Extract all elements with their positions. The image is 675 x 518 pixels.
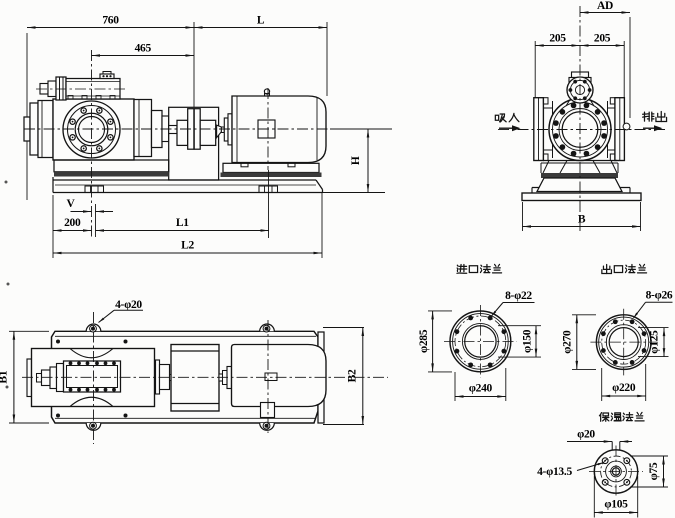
svg-text:4-φ13.5: 4-φ13.5 xyxy=(537,466,572,478)
svg-text:8-φ22: 8-φ22 xyxy=(505,290,532,302)
svg-text:L1: L1 xyxy=(176,217,189,229)
svg-text:φ75: φ75 xyxy=(648,462,660,480)
svg-text:φ150: φ150 xyxy=(522,329,534,353)
svg-text:φ240: φ240 xyxy=(469,383,493,395)
svg-text:200: 200 xyxy=(64,217,81,229)
svg-text:4-φ20: 4-φ20 xyxy=(115,299,142,311)
svg-text:φ20: φ20 xyxy=(577,429,595,441)
svg-text:AD: AD xyxy=(597,0,613,12)
svg-text:H: H xyxy=(350,156,362,165)
svg-text:B: B xyxy=(578,214,586,226)
svg-text:V: V xyxy=(66,198,75,210)
svg-text:φ285: φ285 xyxy=(418,329,430,353)
svg-text:φ125: φ125 xyxy=(649,330,661,354)
svg-text:465: 465 xyxy=(135,43,152,55)
svg-text:φ220: φ220 xyxy=(612,382,636,394)
svg-text:φ105: φ105 xyxy=(604,499,628,511)
svg-text:205: 205 xyxy=(549,33,566,45)
svg-text:8-φ26: 8-φ26 xyxy=(646,290,673,302)
svg-text:L: L xyxy=(257,15,265,27)
svg-text:L2: L2 xyxy=(181,240,194,252)
svg-text:760: 760 xyxy=(102,15,119,27)
svg-text:205: 205 xyxy=(594,33,611,45)
svg-text:B1: B1 xyxy=(0,370,10,383)
svg-text:B2: B2 xyxy=(347,369,359,382)
svg-text:φ270: φ270 xyxy=(561,330,573,354)
